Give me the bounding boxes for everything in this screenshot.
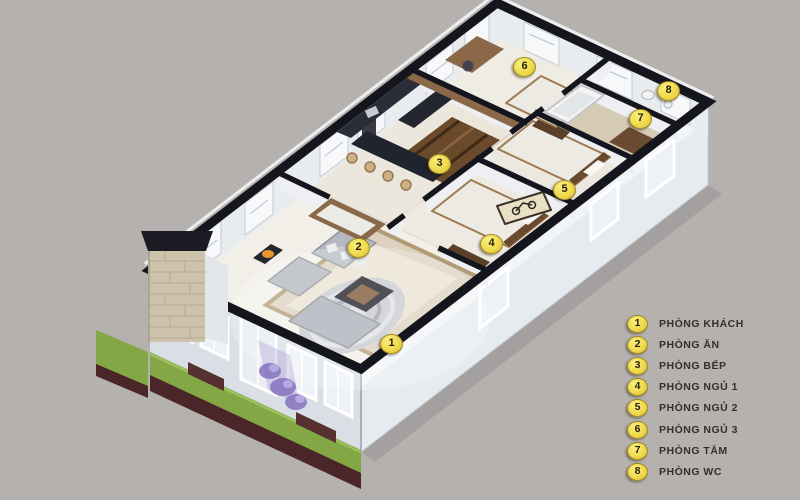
- bar-stool: [401, 180, 411, 190]
- legend-row: 6 PHÒNG NGỦ 3: [627, 419, 744, 440]
- legend-row: 1 PHÒNG KHÁCH: [627, 313, 744, 334]
- toilet: [642, 91, 654, 100]
- legend-badge-1: 1: [627, 315, 648, 333]
- legend-badge-5: 5: [627, 399, 648, 417]
- chimney-cap: [141, 231, 213, 251]
- room-marker-6: 6: [513, 57, 536, 77]
- room-marker-2: 2: [347, 238, 370, 258]
- legend-label-3: PHÒNG BẾP: [659, 360, 727, 372]
- legend-label-1: PHÒNG KHÁCH: [659, 318, 744, 330]
- legend-label-4: PHÒNG NGỦ 1: [659, 381, 738, 393]
- chimney-side-wall: [205, 254, 228, 344]
- legend-badge-6: 6: [627, 421, 648, 439]
- room-marker-1: 1: [380, 334, 403, 354]
- legend-row: 5 PHÒNG NGỦ 2: [627, 398, 744, 419]
- bar-stool: [383, 171, 393, 181]
- legend-row: 7 PHÒNG TẮM: [627, 440, 744, 461]
- room-marker-7: 7: [629, 109, 652, 129]
- legend-label-6: PHÒNG NGỦ 3: [659, 424, 738, 436]
- legend-label-2: PHÒNG ĂN: [659, 339, 720, 351]
- legend-badge-2: 2: [627, 336, 648, 354]
- room-marker-8: 8: [657, 81, 680, 101]
- legend-badge-8: 8: [627, 463, 648, 481]
- legend-row: 2 PHÒNG ĂN: [627, 334, 744, 355]
- legend-row: 4 PHÒNG NGỦ 1: [627, 377, 744, 398]
- legend-row: 3 PHÒNG BẾP: [627, 355, 744, 376]
- legend-label-7: PHÒNG TẮM: [659, 445, 728, 457]
- legend-badge-4: 4: [627, 378, 648, 396]
- room-marker-5: 5: [553, 180, 576, 200]
- fireplace-flame: [262, 250, 274, 258]
- room-marker-4: 4: [480, 234, 503, 254]
- legend-label-5: PHÒNG NGỦ 2: [659, 402, 738, 414]
- floorplan-scene: 1 2 3 4 5 6 7 8 1 PHÒNG KHÁCH 2 PHÒNG ĂN…: [0, 0, 800, 500]
- bar-stool: [347, 153, 357, 163]
- legend-badge-7: 7: [627, 442, 648, 460]
- legend-label-8: PHÒNG WC: [659, 466, 722, 478]
- legend-row: 8 PHÒNG WC: [627, 461, 744, 482]
- bar-stool: [365, 162, 375, 172]
- desk-chair: [463, 61, 474, 72]
- room-legend: 1 PHÒNG KHÁCH 2 PHÒNG ĂN 3 PHÒNG BẾP 4 P…: [627, 313, 744, 483]
- room-marker-3: 3: [428, 154, 451, 174]
- legend-badge-3: 3: [627, 357, 648, 375]
- sink: [664, 100, 672, 108]
